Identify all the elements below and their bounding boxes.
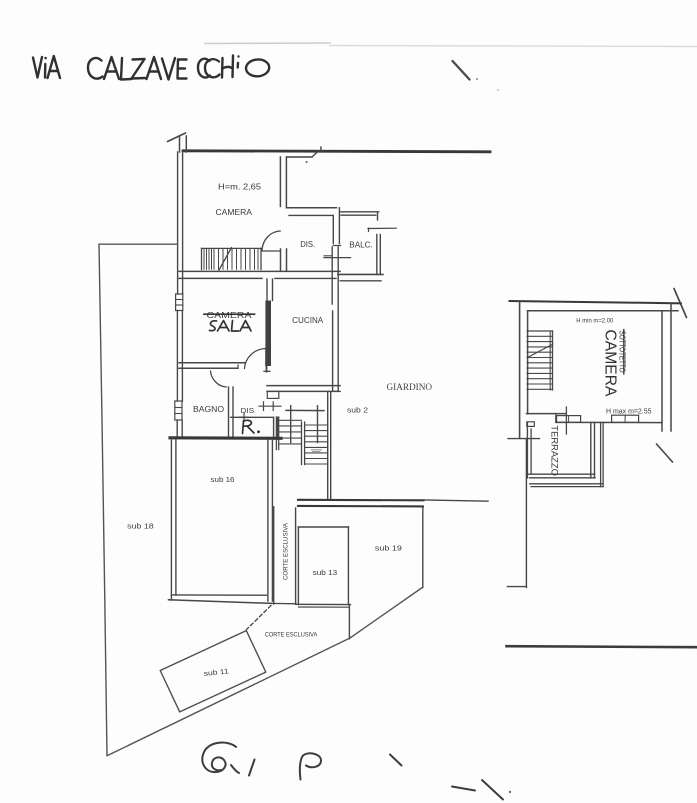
svg-text:CAMERA: CAMERA [216,207,253,217]
svg-text:GIARDINO: GIARDINO [387,383,433,393]
svg-text:CUCINA: CUCINA [292,316,324,325]
svg-text:CORTE ESCLUSIVA: CORTE ESCLUSIVA [265,632,318,639]
svg-text:DIS.: DIS. [300,240,315,249]
svg-text:DIS: DIS [241,406,255,415]
svg-text:sub 16: sub 16 [211,475,235,484]
svg-text:sub 11: sub 11 [203,666,229,678]
svg-text:BALC.: BALC. [349,241,373,250]
svg-text:BAGNO: BAGNO [193,405,224,414]
svg-text:CAMERA: CAMERA [602,330,619,398]
svg-text:sub 19: sub 19 [375,544,402,553]
svg-text:TERRAZZO: TERRAZZO [550,425,560,476]
svg-text:sub 2: sub 2 [347,406,368,415]
svg-text:CORTE ESCLUSIVA: CORTE ESCLUSIVA [283,522,290,580]
svg-text:H min m=2.00: H min m=2.00 [576,317,613,324]
svg-text:sub 18: sub 18 [127,522,154,531]
svg-text:H=m. 2,65: H=m. 2,65 [218,182,261,192]
svg-text:sub 13: sub 13 [313,568,338,577]
svg-text:H max m=2.55: H max m=2.55 [606,409,652,416]
